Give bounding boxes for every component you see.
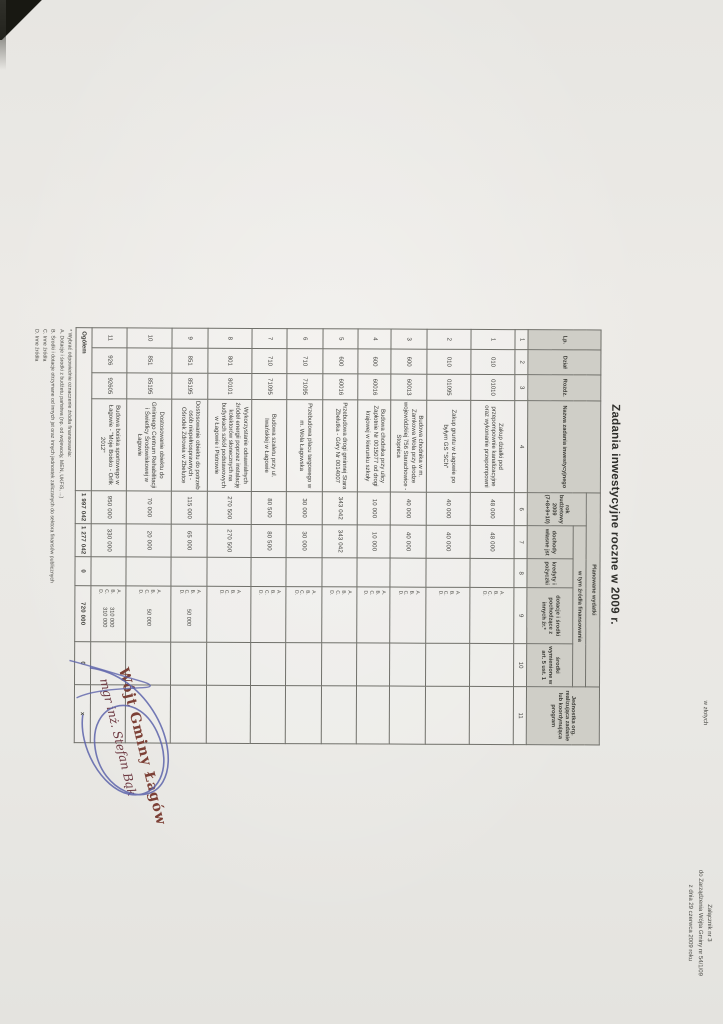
cell-rok-budzetowy: 80 500: [251, 491, 286, 524]
cell-kredyty: [171, 557, 207, 586]
cell-rozdz: 85195: [172, 373, 208, 399]
footnote-line: A. Dotacje i środki z budżetu państwa (n…: [55, 329, 65, 659]
cell-dochody-wlasne: 330 000: [91, 524, 126, 557]
source-letter-list: A.B.C.D.: [327, 590, 351, 595]
table-row: 360060013Budowa chodnika w m. Zamkowa Wo…: [389, 329, 427, 744]
cell-task-name: Przebudowa drogi gminnej Stara Zbelutka …: [322, 400, 357, 492]
cell-rozdz: 60013: [391, 374, 427, 400]
cell-dotacje: A.B.C.D.: [470, 587, 514, 643]
cell-srodki-art5: [470, 643, 514, 686]
source-letter-list: A.B.C.D.: [361, 590, 385, 595]
col-header-lp: Lp.: [528, 330, 601, 350]
table-row: 101001010Zakup działki pod przepompownie…: [469, 329, 515, 744]
source-letter-list: A.B.C.D.: [436, 591, 460, 596]
cell-task-name: Budowa chodnika w m. Zamkowa Wola przy d…: [390, 400, 426, 492]
cell-lp: 7: [252, 328, 287, 348]
cell-srodki-art5: [251, 642, 286, 685]
dotacje-values: 50 000: [186, 594, 192, 640]
investment-table: Lp. Dział Rozdz. Nazwa zadania inwestycy…: [74, 327, 602, 745]
cell-dzial: 600: [323, 349, 358, 374]
cell-kredyty: [357, 558, 390, 587]
cell-rok-budzetowy: 48 000: [470, 492, 514, 525]
cell-kredyty: [426, 558, 470, 587]
cell-kredyty: [126, 557, 171, 586]
cell-jednostka: [250, 685, 285, 743]
cell-lp: 8: [208, 328, 252, 348]
cell-kredyty: [251, 557, 286, 586]
cell-rok-budzetowy: 950 000: [91, 491, 126, 524]
cell-dochody-wlasne: 80 500: [251, 524, 286, 557]
col-group-zrodla: w tym źródła finansowania: [573, 526, 587, 687]
cell-dotacje: A.B.C.D.: [357, 587, 390, 643]
cell-rozdz: 85195: [127, 373, 172, 399]
cell-kredyty: [207, 557, 251, 586]
source-letter-list: A.B.C.D.: [292, 590, 316, 595]
table-row: 985185195Dostosowanie obiektu do potrzeb…: [170, 328, 208, 743]
cell-srodki-art5: [390, 643, 426, 686]
source-letter-list: A.B.C.D.: [480, 591, 504, 596]
cell-rok-budzetowy: 40 000: [390, 492, 426, 525]
source-letter-list: A.B.C.D.: [396, 591, 420, 596]
cell-dzial: 710: [252, 348, 287, 373]
cell-rok-budzetowy: 115 000: [171, 491, 207, 524]
cell-lp: 2: [427, 329, 471, 349]
cell-jednostka: [425, 686, 469, 744]
cell-dochody-wlasne: 20 000: [126, 524, 171, 557]
footnote-line: D. Inne źródła: [31, 329, 41, 659]
col-header-kredyty: kredyty i pożyczki: [527, 559, 573, 588]
total-dotacje: 720 000: [75, 586, 91, 642]
column-number: 11: [513, 687, 526, 745]
cell-lp: 10: [127, 328, 172, 348]
col-header-dzial: Dział: [528, 350, 601, 375]
table-row: 671071095Przebudowa placu targowego w m.…: [285, 329, 323, 744]
cell-rozdz: 71095: [252, 373, 287, 399]
col-header-rok: rok budżetowy 2009 (7+8+9+10): [527, 493, 586, 526]
column-number: 6: [514, 493, 527, 526]
cell-srodki-art5: [207, 642, 251, 685]
cell-dotacje: A.B.C.D.: [322, 587, 357, 643]
cell-dotacje: A.B.C.D.: [207, 586, 251, 642]
cell-task-name: Dostosowanie obiektu do potrzeb osób nie…: [171, 399, 207, 491]
attachment-note-line1: Załącznik nr 3: [703, 830, 713, 1016]
source-letter-list: A.B.C.D.: [256, 590, 280, 595]
cell-lp: 1: [471, 329, 515, 349]
cell-jednostka: [389, 686, 425, 744]
cell-rozdz: 01095: [427, 374, 471, 400]
cell-rozdz: 71095: [287, 374, 323, 400]
cell-srodki-art5: [426, 643, 470, 686]
cell-task-name: Dostosowanie obiektu do Gminnego Centrum…: [126, 399, 171, 491]
cell-rozdz: 01010: [471, 374, 515, 400]
cell-srodki-art5: [171, 642, 207, 685]
page-title: Zadania inwestycyjne roczne w 2009 r.: [608, 300, 622, 730]
column-number: 2: [515, 350, 528, 375]
cell-dzial: 851: [172, 348, 208, 373]
cell-dzial: 010: [427, 349, 471, 374]
cell-dochody-wlasne: 40 000: [426, 525, 470, 558]
cell-dzial: 010: [471, 349, 515, 374]
cell-kredyty: [322, 558, 357, 587]
cell-jednostka: [469, 686, 513, 744]
cell-srodki-art5: [286, 643, 322, 686]
cell-dochody-wlasne: 40 000: [390, 525, 426, 558]
cell-task-name: Budowa boiska sportowego w Łagowie - "Mo…: [91, 399, 126, 491]
document-landscape-content: Załącznik nr 3 do Zarządzenia Wójta Gmin…: [0, 0, 723, 1024]
dotacje-values: 310 000310 000: [102, 594, 115, 640]
col-header-dochody: dochody własne jst: [527, 526, 573, 559]
attachment-note: Załącznik nr 3 do Zarządzenia Wójta Gmin…: [685, 830, 714, 1016]
col-header-nazwa: Nazwa zadania inwestycyjnego: [527, 401, 600, 493]
cell-srodki-art5: [357, 643, 390, 686]
cell-dotacje: A.B.C.D.50 000: [171, 586, 207, 642]
cell-lp: 9: [172, 328, 208, 348]
cell-jednostka: [170, 685, 206, 743]
column-number: 8: [514, 559, 527, 588]
cell-dzial: 600: [358, 349, 391, 374]
cell-lp: 5: [323, 329, 358, 349]
cell-jednostka: [356, 686, 389, 744]
col-header-rozdz: Rozdz.: [528, 375, 601, 401]
cell-kredyty: [91, 557, 126, 586]
cell-dzial: 710: [287, 349, 323, 374]
cell-dzial: 926: [92, 348, 127, 373]
source-letter-list: A.B.C.D.: [217, 590, 241, 595]
cell-task-name: Wykorzystanie odnawialnych źródeł energi…: [207, 399, 251, 491]
total-kredyty: 0: [75, 557, 91, 586]
cell-task-name: Przebudowa placu targowego w m. Wola Łag…: [286, 400, 322, 492]
column-number: 9: [514, 588, 527, 644]
cell-task-name: Zakup działki pod przepompownie kanaliza…: [470, 400, 514, 492]
table-row: 560060016Przebudowa drogi gminnej Stara …: [321, 329, 358, 744]
scanned-page: Załącznik nr 3 do Zarządzenia Wójta Gmin…: [0, 0, 723, 1024]
cell-rozdz: 60016: [323, 374, 358, 400]
cell-task-name: Zakup gruntu w Łagowie po byłym GS "SCh": [426, 400, 470, 492]
cell-rok-budzetowy: 270 500: [207, 491, 251, 524]
column-number: 7: [514, 526, 527, 559]
cell-lp: 3: [391, 329, 427, 349]
column-number: 3: [515, 375, 528, 401]
cell-kredyty: [470, 558, 514, 587]
cell-rozdz: 92605: [92, 373, 127, 399]
col-header-srodki: środki wymienione w art. 5 ust. 1: [527, 644, 573, 687]
cell-task-name: Budowa chodnika przy ulicy Zapłotnie Nr …: [357, 400, 390, 492]
cell-jednostka: [285, 686, 321, 744]
currency-note: w złotych: [702, 668, 708, 758]
cell-rok-budzetowy: 10 000: [357, 492, 390, 525]
cell-rozdz: 80101: [208, 373, 252, 399]
cell-dotacje: A.B.C.D.: [251, 586, 286, 642]
scan-corner-artifact: [0, 0, 54, 40]
col-header-dotacje: dotacje i środki pochodzące z innych źr.…: [527, 588, 573, 644]
cell-dochody-wlasne: 343 042: [322, 525, 357, 558]
column-number: 4: [514, 401, 527, 493]
cell-rok-budzetowy: 40 000: [426, 492, 470, 525]
cell-rok-budzetowy: 30 000: [286, 492, 322, 525]
cell-kredyty: [286, 558, 322, 587]
footnote-line: B. Środki i dotacje otrzymane od innych …: [47, 329, 57, 659]
cell-dotacje: A.B.C.D.: [390, 587, 426, 643]
cell-lp: 4: [358, 329, 391, 349]
cell-dochody-wlasne: 65 000: [171, 524, 207, 557]
cell-lp: 11: [92, 328, 127, 348]
cell-jednostka: [321, 686, 356, 744]
table-row: 771071095Budowa szaletu przy ul. Iwański…: [250, 328, 287, 743]
cell-dotacje: A.B.C.D.50 000: [126, 586, 171, 642]
column-number-row: 1 2 3 4 6 7 8 9 10 11: [513, 330, 528, 745]
cell-rok-budzetowy: 70 000: [126, 491, 171, 524]
cell-dotacje: A.B.C.D.: [286, 587, 322, 643]
cell-rozdz: 60016: [358, 374, 391, 400]
cell-dochody-wlasne: 10 000: [357, 525, 390, 558]
cell-dochody-wlasne: 30 000: [286, 525, 322, 558]
total-rok: 1 997 042: [75, 491, 91, 524]
cell-lp: 6: [287, 329, 323, 349]
cell-kredyty: [390, 558, 426, 587]
col-group-planowane: Planowane wydatki: [586, 493, 601, 687]
cell-dotacje: A.B.C.D.: [426, 587, 470, 643]
cell-jednostka: [206, 685, 250, 743]
table-row: 201001095Zakup gruntu w Łagowie po byłym…: [425, 329, 471, 744]
dotacje-values: 50 000: [145, 594, 151, 640]
scan-edge-artifact: [0, 0, 6, 70]
cell-dzial: 801: [208, 348, 252, 373]
column-number: 10: [514, 644, 527, 687]
footnote-line: * Wybrać odpowiednie oznaczenie źródła f…: [64, 329, 74, 659]
table-row: 460060016Budowa chodnika przy ulicy Zapł…: [356, 329, 391, 744]
cell-dzial: 851: [127, 348, 172, 373]
cell-task-name: Budowa szaletu przy ul. Iwańskiej w Łago…: [251, 399, 286, 491]
total-label: Ogółem: [75, 328, 92, 491]
cell-srodki-art5: [322, 643, 357, 686]
cell-rok-budzetowy: 343 042: [322, 492, 357, 525]
column-number: 1: [515, 330, 528, 350]
cell-dochody-wlasne: 48 000: [470, 525, 514, 558]
attachment-note-line2: do Zarządzenia Wójta Gminy nr 54/1/09: [694, 830, 704, 1016]
total-dochody: 1 277 042: [75, 524, 91, 557]
col-header-jednostka: Jednostka org. realizująca zadanie lub k…: [526, 687, 599, 745]
footnotes-block: * Wybrać odpowiednie oznaczenie źródła f…: [31, 329, 74, 659]
cell-dochody-wlasne: 270 500: [207, 524, 251, 557]
attachment-note-line3: z dnia 29 czerwca 2009 roku: [685, 830, 695, 1016]
cell-dzial: 600: [391, 349, 427, 374]
table-row: 880180101Wykorzystanie odnawialnych źród…: [206, 328, 252, 743]
